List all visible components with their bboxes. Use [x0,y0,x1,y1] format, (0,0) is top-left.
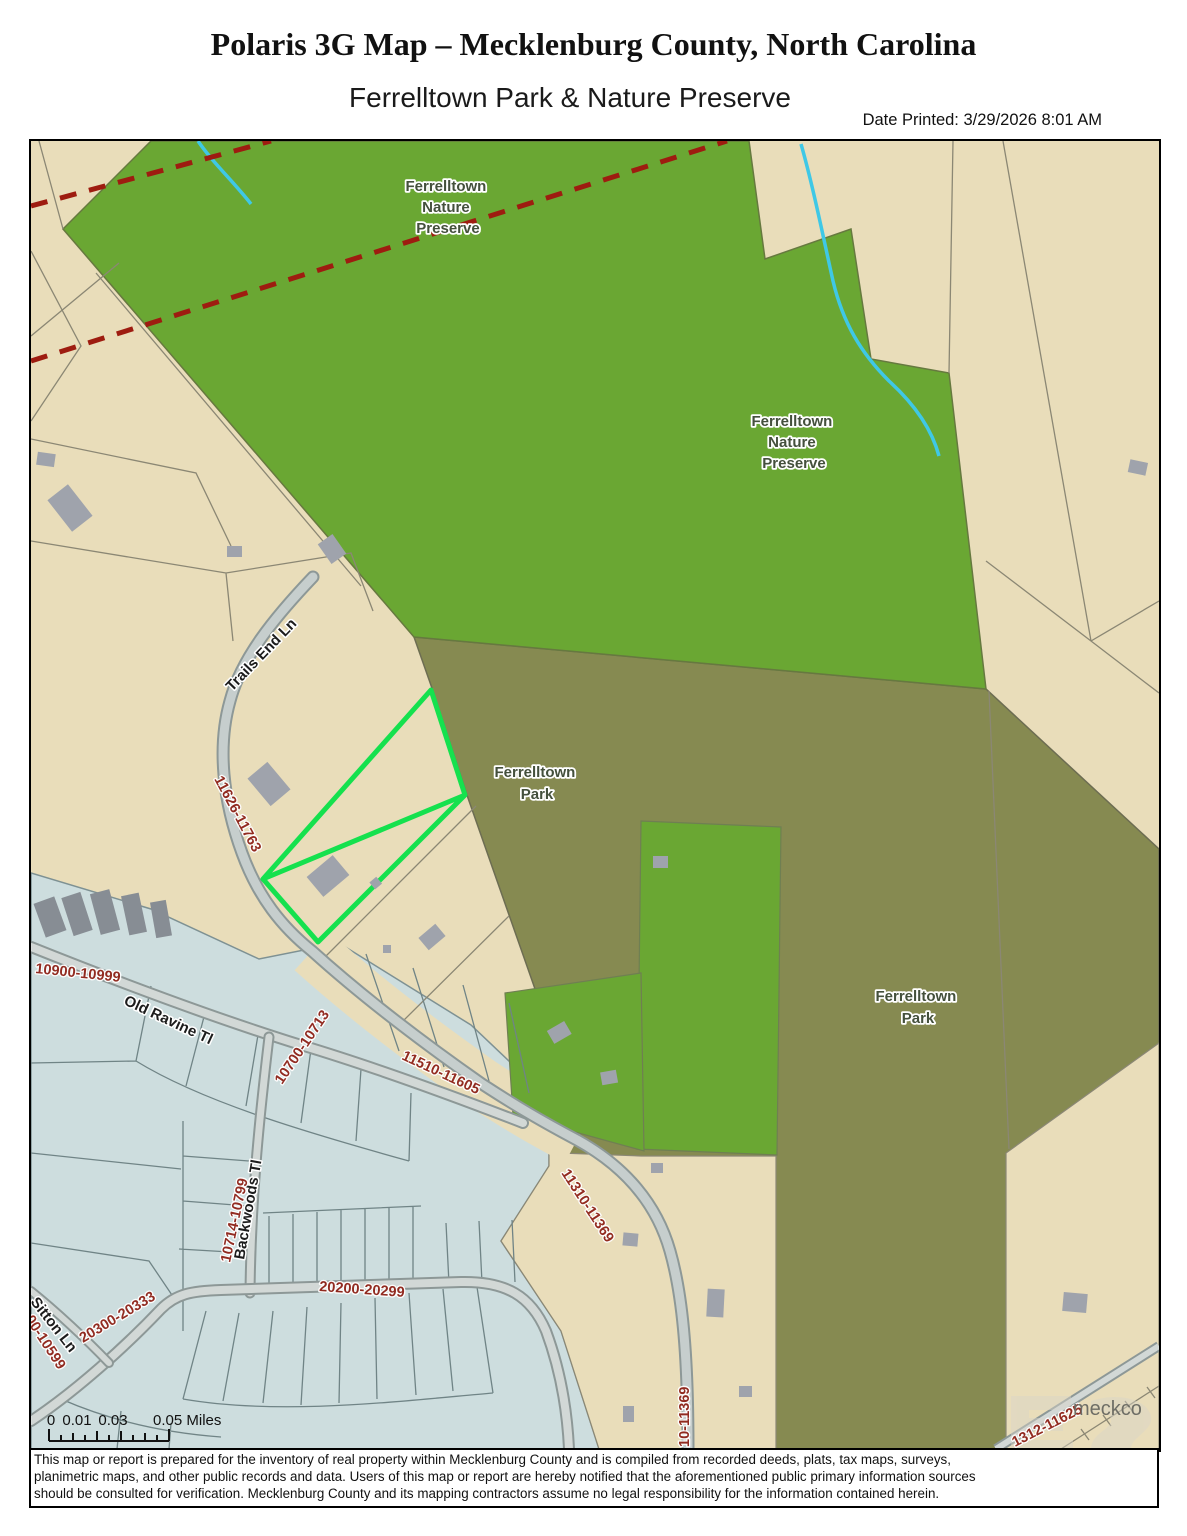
map-frame: Ferrelltown Nature Preserve Ferrelltown … [29,139,1161,1452]
scale-label-0: 0 [47,1412,55,1429]
page-title: Polaris 3G Map – Mecklenburg County, Nor… [0,26,1187,63]
date-printed: Date Printed: 3/29/2026 8:01 AM [863,111,1102,130]
disclaimer-line-1: This map or report is prepared for the i… [34,1451,1154,1468]
meckco-watermark: meckco [1073,1398,1142,1420]
disclaimer-line-3: should be consulted for verification. Me… [34,1485,1154,1502]
label-range-11369: 10-11369 [677,1387,693,1447]
disclaimer: This map or report is prepared for the i… [29,1448,1159,1508]
scale-label-miles: 0.05 Miles [153,1412,221,1429]
scale-label-001: 0.01 [62,1412,91,1429]
scale-label-003: 0.03 [98,1412,127,1429]
map-subtitle: Ferrelltown Park & Nature Preserve [0,82,1140,114]
disclaimer-line-2: planimetric maps, and other public recor… [34,1468,1154,1485]
page: Polaris 3G Map – Mecklenburg County, Nor… [0,0,1187,1536]
green-parcel-1 [637,821,781,1155]
map-canvas[interactable]: Ferrelltown Nature Preserve Ferrelltown … [31,141,1159,1450]
